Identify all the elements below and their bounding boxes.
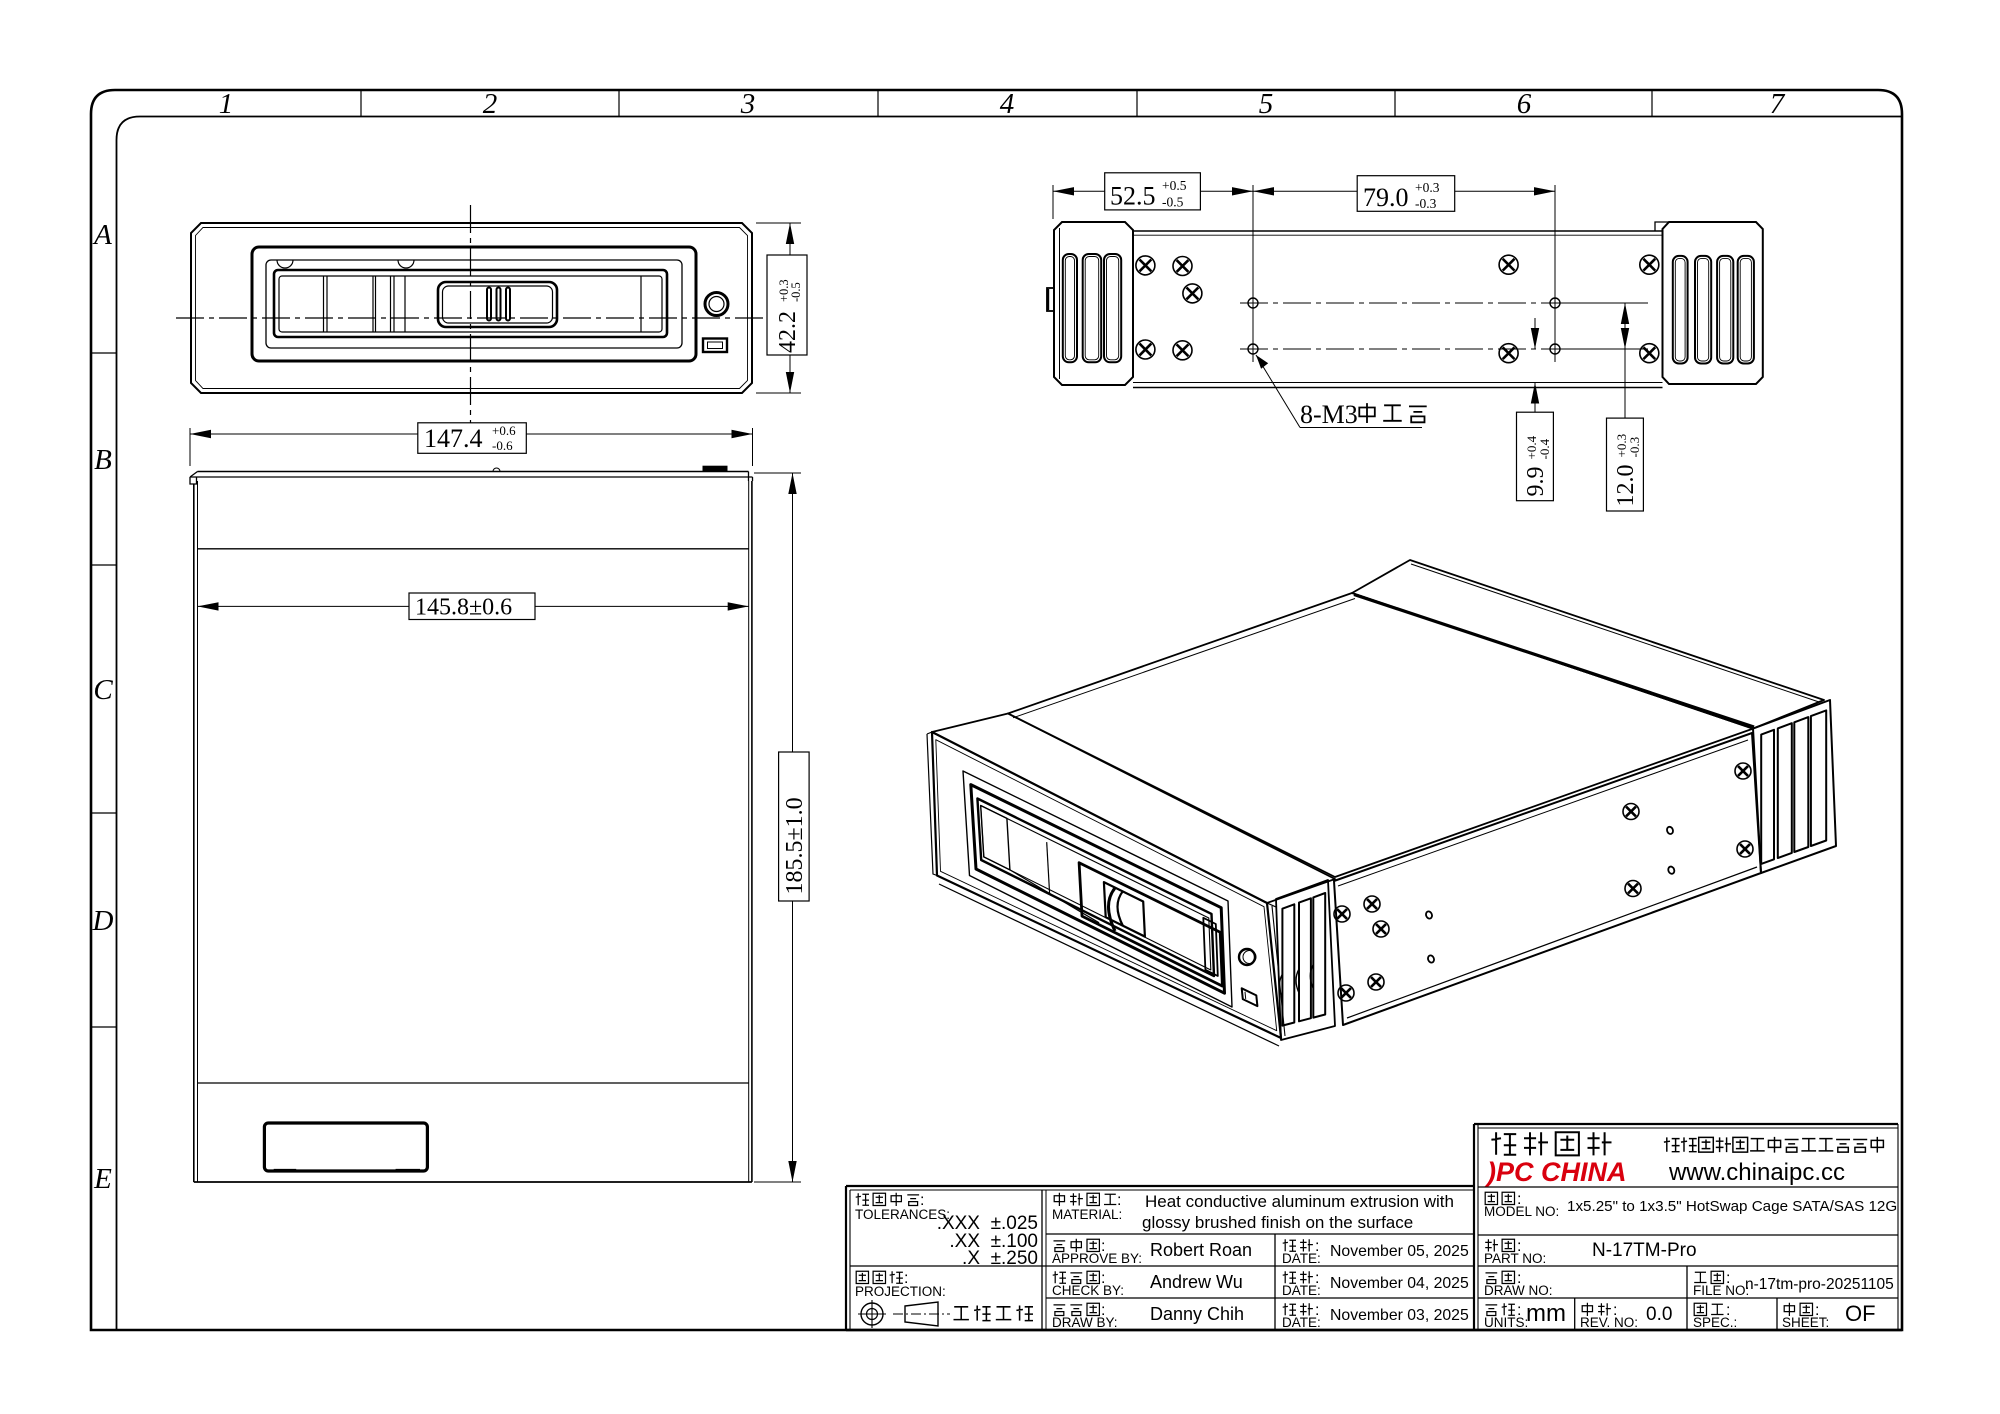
svg-text:79.0: 79.0: [1363, 183, 1409, 212]
svg-text:-0.5: -0.5: [1162, 195, 1184, 210]
svg-text:C: C: [93, 674, 113, 706]
svg-text:November 04, 2025: November 04, 2025: [1330, 1275, 1469, 1292]
svg-text:7: 7: [1770, 88, 1786, 120]
svg-text:n-17tm-pro-20251105: n-17tm-pro-20251105: [1745, 1276, 1894, 1293]
svg-text:MATERIAL:: MATERIAL:: [1052, 1207, 1122, 1222]
svg-text:.X: .X: [962, 1248, 980, 1269]
svg-text:OF: OF: [1845, 1301, 1876, 1326]
svg-text:147.4: 147.4: [424, 424, 483, 453]
svg-text:DATE:: DATE:: [1282, 1251, 1321, 1266]
svg-text:-0.4: -0.4: [1537, 438, 1552, 459]
svg-text:-0.5: -0.5: [789, 282, 803, 302]
svg-text:8-M3: 8-M3: [1300, 400, 1358, 429]
svg-text:145.8±0.6: 145.8±0.6: [415, 595, 512, 621]
svg-text:UNITS:: UNITS:: [1484, 1315, 1528, 1330]
svg-text:A: A: [92, 219, 112, 251]
svg-text:4: 4: [1000, 88, 1015, 120]
svg-text:Heat conductive aluminum extru: Heat conductive aluminum extrusion with: [1145, 1192, 1454, 1211]
svg-text:REV. NO:: REV. NO:: [1580, 1315, 1638, 1330]
svg-text:±.250: ±.250: [991, 1248, 1038, 1269]
svg-text:3: 3: [740, 88, 756, 120]
svg-text:185.5±1.0: 185.5±1.0: [782, 797, 808, 894]
svg-text:+0.5: +0.5: [1162, 178, 1187, 193]
svg-text:12.0: 12.0: [1613, 465, 1639, 507]
svg-text:November 05, 2025: November 05, 2025: [1330, 1243, 1469, 1260]
svg-text:-0.3: -0.3: [1415, 196, 1437, 211]
svg-text:FILE NO:: FILE NO:: [1693, 1283, 1749, 1298]
svg-text:DRAW BY:: DRAW BY:: [1052, 1315, 1118, 1330]
svg-text:November 03, 2025: November 03, 2025: [1330, 1307, 1469, 1324]
svg-text:0.0: 0.0: [1646, 1304, 1672, 1325]
svg-text:52.5: 52.5: [1110, 182, 1156, 211]
svg-text:SHEET:: SHEET:: [1782, 1315, 1829, 1330]
svg-text:B: B: [94, 444, 112, 476]
svg-text:www.chinaipc.cc: www.chinaipc.cc: [1668, 1159, 1845, 1186]
svg-text:Robert Roan: Robert Roan: [1150, 1240, 1252, 1260]
svg-text:Danny Chih: Danny Chih: [1150, 1304, 1244, 1324]
svg-text:PROJECTION:: PROJECTION:: [855, 1284, 946, 1299]
svg-text:DATE:: DATE:: [1282, 1283, 1321, 1298]
svg-text:)PC CHINA: )PC CHINA: [1484, 1157, 1627, 1187]
svg-text:mm: mm: [1526, 1300, 1566, 1327]
svg-text:5: 5: [1259, 88, 1274, 120]
svg-text:DRAW NO:: DRAW NO:: [1484, 1283, 1553, 1298]
svg-text:6: 6: [1517, 88, 1532, 120]
svg-text:-0.3: -0.3: [1627, 437, 1642, 458]
svg-text:glossy brushed finish on the s: glossy brushed finish on the surface: [1142, 1213, 1413, 1232]
svg-text:N-17TM-Pro: N-17TM-Pro: [1592, 1240, 1697, 1261]
svg-text:+0.3: +0.3: [1415, 180, 1440, 195]
svg-text:Andrew Wu: Andrew Wu: [1150, 1272, 1243, 1292]
svg-text:MODEL NO:: MODEL NO:: [1484, 1204, 1559, 1219]
svg-text:2: 2: [483, 88, 498, 120]
svg-text:E: E: [93, 1163, 112, 1195]
svg-text:D: D: [92, 905, 114, 937]
svg-text:1: 1: [219, 88, 234, 120]
svg-text:APPROVE BY:: APPROVE BY:: [1052, 1251, 1142, 1266]
svg-text:CHECK BY:: CHECK BY:: [1052, 1283, 1124, 1298]
svg-text:-0.6: -0.6: [492, 438, 513, 453]
svg-text:9.9: 9.9: [1523, 467, 1549, 497]
svg-text:42.2: 42.2: [775, 311, 801, 353]
svg-text:SPEC.:: SPEC.:: [1693, 1315, 1737, 1330]
svg-text:1x5.25" to 1x3.5" HotSwap Cage: 1x5.25" to 1x3.5" HotSwap Cage SATA/SAS …: [1567, 1198, 1897, 1215]
svg-text:PART NO:: PART NO:: [1484, 1251, 1546, 1266]
svg-text:+0.6: +0.6: [492, 423, 516, 438]
svg-text:DATE:: DATE:: [1282, 1315, 1321, 1330]
